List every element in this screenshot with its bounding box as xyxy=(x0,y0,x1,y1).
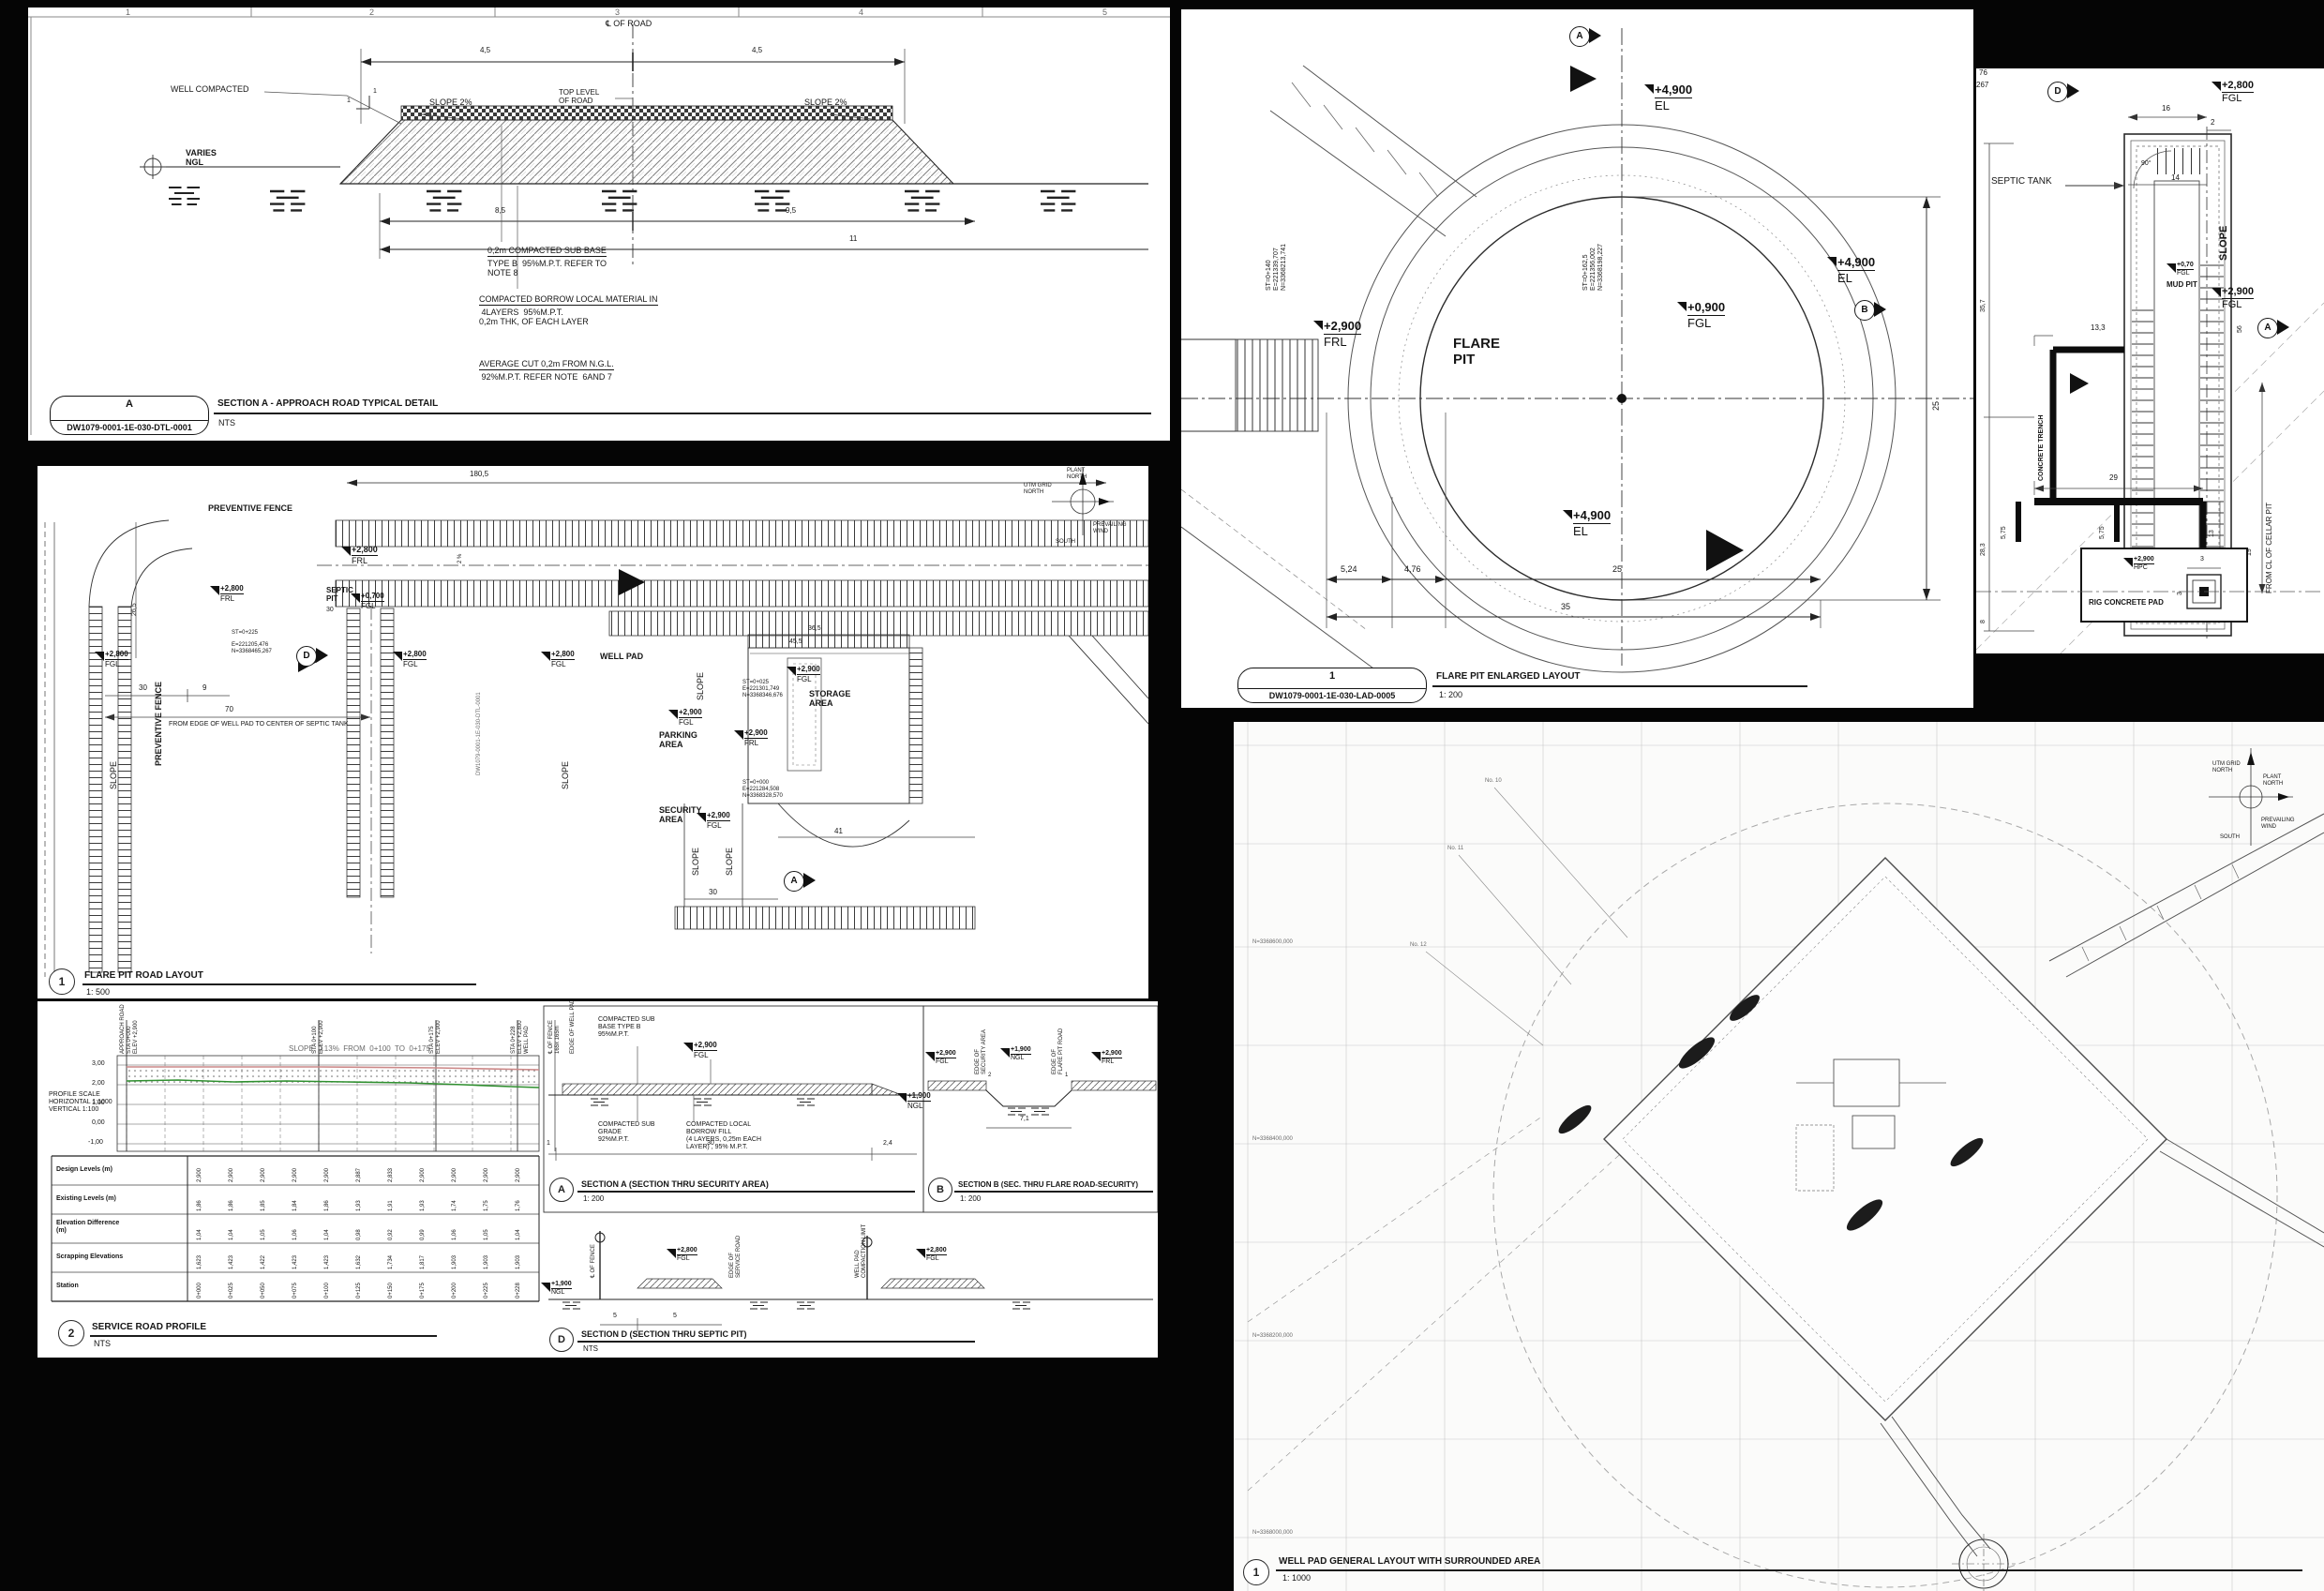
slope-2pct-right: SLOPE 2% xyxy=(804,98,847,107)
station-7: 0+175 xyxy=(420,1283,427,1298)
station-coords-center: ST=0+162,5 E=221356,002 N=3368198,227 xyxy=(1582,244,1605,291)
section-marker-d4: D xyxy=(296,646,317,667)
elev-datum: FGL xyxy=(2222,299,2254,310)
secB-edge-security: EDGE OF SECURITY AREA xyxy=(975,1029,988,1074)
coords-a: E=221205,476 N=3368465,267 xyxy=(232,642,272,655)
slope-ratio-1a: 1 xyxy=(347,98,351,105)
elev-flag-frl-top: +2,800 FRL xyxy=(352,545,378,565)
grid-n-1: N=3368600,000 xyxy=(1252,939,1293,946)
elev-datum: FRL xyxy=(744,739,768,747)
dim-35: 35 xyxy=(1561,602,1570,611)
elev-value: +2,900 xyxy=(694,1041,717,1051)
elev-value: +0,900 xyxy=(1687,300,1725,316)
p5-ref2-label: 2 xyxy=(68,1327,75,1340)
scrap-7: 1,817 xyxy=(420,1255,427,1269)
secA-note-fill: COMPACTED LOCAL BORROW FILL (4 LAYERS, 0… xyxy=(686,1121,761,1151)
panel-septic-mud-pit-detail: 76 267 D +2,800 FGL 16 2 SEPTIC TANK 14 … xyxy=(1976,68,2324,653)
p6-title: WELL PAD GENERAL LAYOUT WITH SURROUNDED … xyxy=(1279,1556,1540,1568)
elev-flag-top: +4,900 EL xyxy=(1655,83,1692,113)
elev-value: +2,800 xyxy=(105,650,128,660)
secB-scale: 1: 200 xyxy=(960,1194,981,1203)
elev-datum: NGL xyxy=(1011,1055,1031,1061)
well-compacted-label: WELL COMPACTED xyxy=(171,84,249,94)
elev-datum: FGL xyxy=(679,718,702,727)
secB-slope-2: 2 xyxy=(988,1073,991,1079)
dim-4-5-left: 4,5 xyxy=(480,46,490,54)
design-10: 2,900 xyxy=(516,1168,522,1182)
design-2: 2,900 xyxy=(261,1168,267,1182)
secD-comp-limit: WELL PAD COMPACTION LIMIT xyxy=(855,1224,868,1278)
secD-cl-fence: ℄ OF FENCE xyxy=(591,1244,597,1278)
elev-flag-storage: +2,900 FGL xyxy=(797,665,820,683)
frag-267: 267 xyxy=(1976,81,1988,89)
p2-ref-number: DW1079-0001-1E-030-LAD-0005 xyxy=(1238,689,1426,702)
elev-datum: FGL xyxy=(707,821,730,830)
dim-25: 25 xyxy=(1612,564,1622,574)
panel-profile-and-sections: PROFILE SCALE HORIZONTAL 1:1000 VERTICAL… xyxy=(37,1001,1158,1358)
dim-30-septic: 30 xyxy=(326,607,334,614)
elev-flag-parking: +2,900 FGL xyxy=(679,708,702,727)
scrap-3: 1,423 xyxy=(292,1255,299,1269)
p2-title: FLARE PIT ENLARGED LAYOUT xyxy=(1436,671,1581,683)
ref-no-11: No. 11 xyxy=(1447,846,1463,852)
elev-flag-right: +4,900 EL xyxy=(1837,255,1875,285)
station-2: 0+050 xyxy=(261,1283,267,1298)
elev-value: +2,800 xyxy=(352,545,378,556)
elev-datum: FGL xyxy=(105,660,128,668)
scrap-2: 1,422 xyxy=(261,1255,267,1269)
section-marker-a-label: A xyxy=(1576,31,1582,41)
design-5: 2,887 xyxy=(356,1168,363,1182)
dim-9: 9 xyxy=(202,683,206,692)
design-1: 2,900 xyxy=(229,1168,235,1182)
elev-flag-mud: +0,70 FGL xyxy=(2177,262,2194,277)
elev-value: +2,900 xyxy=(744,728,768,739)
secB-id: B xyxy=(928,1178,952,1202)
secB-frl-flag: +2,900 FRL xyxy=(1102,1050,1122,1065)
secA-dim-30: 30 xyxy=(707,1140,714,1148)
dim-8-5: 8,5 xyxy=(495,206,505,215)
dim-2: 2 xyxy=(2211,118,2214,127)
p5-scale2: NTS xyxy=(94,1339,111,1348)
p4-ref-id-label: 1 xyxy=(59,975,66,988)
elev-value: +2,800 xyxy=(677,1247,697,1255)
sta-label-0: APPROACH ROAD STA 0+000 ELEV +2,900 xyxy=(120,1004,140,1054)
design-4: 2,900 xyxy=(324,1168,331,1182)
p1-ref-letter: A xyxy=(51,397,208,421)
p6-scale: 1: 1000 xyxy=(1282,1573,1311,1583)
secB-rule xyxy=(954,1191,1153,1193)
dim-4-76: 4,76 xyxy=(1404,564,1421,574)
section-marker-a: A xyxy=(1569,26,1590,47)
grid-n-3: N=3368200,000 xyxy=(1252,1333,1293,1340)
diff-4: 1,04 xyxy=(324,1229,331,1240)
scrap-0: 1,623 xyxy=(197,1255,203,1269)
dim-13: 13 xyxy=(2209,530,2216,537)
p4-scale: 1: 500 xyxy=(86,987,110,997)
elev-datum: EL xyxy=(1655,98,1692,113)
secA-id: A xyxy=(549,1178,574,1202)
secD-fgl-flag-1: +2,800 FGL xyxy=(677,1247,697,1262)
sheet-col-1: 1 xyxy=(126,8,130,17)
diff-1: 1,04 xyxy=(229,1229,235,1240)
elev-datum: NGL xyxy=(907,1102,931,1110)
sheet-col-5: 5 xyxy=(1102,8,1107,17)
station-4: 0+100 xyxy=(324,1283,331,1298)
secD-rule xyxy=(577,1341,975,1343)
station-coords-left: ST=0+140 E=221339,707 N=3368213,741 xyxy=(1266,244,1288,291)
elev-datum: FGL xyxy=(1687,316,1725,330)
rig-concrete-pad-label: RIG CONCRETE PAD xyxy=(2089,598,2164,607)
diff-2: 1,05 xyxy=(261,1229,267,1240)
elev-flag-fgl-1: +2,800 FGL xyxy=(105,650,128,668)
panel-flare-pit-road-layout: 180,5 PREVENTIVE FENCE PREVENTIVE FENCE … xyxy=(37,466,1148,998)
design-3: 2,900 xyxy=(292,1168,299,1182)
slope-2-pct: 2 % xyxy=(457,554,464,563)
dim-30a: 30 xyxy=(139,683,147,692)
scrap-5: 1,632 xyxy=(356,1255,363,1269)
design-7: 2,900 xyxy=(420,1168,427,1182)
station-3: 0+075 xyxy=(292,1283,299,1298)
diff-5: 0,98 xyxy=(356,1229,363,1240)
p1-title: SECTION A - APPROACH ROAD TYPICAL DETAIL xyxy=(217,398,438,410)
elev-datum: FGL xyxy=(797,675,820,683)
elev-datum: FRL xyxy=(1102,1058,1122,1065)
dim-14: 14 xyxy=(2171,173,2180,182)
secD-ngl-flag: +1,900 NGL xyxy=(551,1281,572,1296)
p1-ref-capsule: A DW1079-0001-1E-030-DTL-0001 xyxy=(50,396,209,435)
existing-8: 1,74 xyxy=(452,1200,458,1211)
p2-scale: 1: 200 xyxy=(1439,690,1462,699)
elev-value: +2,900 xyxy=(1324,319,1361,335)
dim-36-5: 36,5 xyxy=(808,625,821,633)
note-subbase-body: TYPE B 95%M.P.T. REFER TO NOTE 8 xyxy=(487,259,607,278)
slope-sec-2: SLOPE xyxy=(725,848,734,876)
scrap-4: 1,423 xyxy=(324,1255,331,1269)
elev-datum: FGL xyxy=(2177,270,2194,277)
p1-ref-number: DW1079-0001-1E-030-DTL-0001 xyxy=(51,421,208,434)
existing-6: 1,91 xyxy=(388,1200,395,1211)
elev-datum: HPC xyxy=(2134,564,2154,571)
elev-value: +2,800 xyxy=(2222,80,2254,93)
station-025: ST=0+025 E=221301,749 N=3368346,676 xyxy=(742,680,783,699)
prevailing-wind-label-6: PREVAILING WIND xyxy=(2261,818,2295,831)
elev-value: +0,70 xyxy=(2177,262,2194,270)
dim-8: 8 xyxy=(1980,620,1987,623)
dim-45-5: 45,5 xyxy=(789,638,802,646)
dim-56: 56 xyxy=(2237,325,2244,333)
elev-datum: FGL xyxy=(551,660,575,668)
existing-3: 1,84 xyxy=(292,1200,299,1211)
elev-datum: FRL xyxy=(352,556,378,565)
scrap-9: 1,903 xyxy=(484,1255,490,1269)
diff-10: 1,04 xyxy=(516,1229,522,1240)
sta-label-3: STA 0+228 ELEV +2,800 WELL PAD xyxy=(511,1020,531,1054)
secD-dim-5b: 5 xyxy=(673,1313,677,1320)
secA-dim-24: 2,4 xyxy=(883,1140,892,1148)
secD-id: D xyxy=(549,1328,574,1352)
section-marker-b: B xyxy=(1854,300,1875,321)
elev-flag-28: +2,800 FGL xyxy=(2222,80,2254,104)
secB-ngl-flag: +1,900 NGL xyxy=(1011,1046,1031,1061)
top-level-of-road-label: TOP LEVEL OF ROAD xyxy=(559,88,599,105)
plant-north-label: PLANT NORTH xyxy=(1067,468,1087,481)
parking-area-label: PARKING AREA xyxy=(659,730,697,750)
centerline-of-road-label: ℄ OF ROAD xyxy=(606,19,652,28)
existing-9: 1,75 xyxy=(484,1200,490,1211)
elev-datum: FRL xyxy=(220,594,244,603)
ref-no-10: No. 10 xyxy=(1485,778,1502,785)
design-8: 2,900 xyxy=(452,1168,458,1182)
south-label: SOUTH xyxy=(1056,539,1075,546)
dim-19: 19 xyxy=(2246,548,2254,556)
p2-ref-id: 1 xyxy=(1238,668,1426,689)
existing-4: 1,86 xyxy=(324,1200,331,1211)
elev-datum: FGL xyxy=(677,1255,697,1262)
grid-n-4: N=3368000,000 xyxy=(1252,1530,1293,1537)
scrap-10: 1,903 xyxy=(516,1255,522,1269)
dim-25-vertical: 25 xyxy=(1931,401,1941,411)
prevailing-wind-label: PREVAILING WIND xyxy=(1093,522,1127,535)
dim-3a: 3 xyxy=(2200,556,2204,563)
ytick-m1: -1,00 xyxy=(88,1139,103,1147)
design-0: 2,900 xyxy=(197,1168,203,1182)
secA-rule xyxy=(577,1191,915,1193)
p6-linework xyxy=(1234,722,2324,1591)
elev-value: +2,800 xyxy=(926,1247,947,1255)
dim-35-7: 35,7 xyxy=(1980,299,1987,312)
secB-edge-flare: EDGE OF FLARE PIT ROAD xyxy=(1052,1028,1065,1074)
section-marker-a4-label: A xyxy=(790,876,797,886)
existing-10: 1,76 xyxy=(516,1200,522,1211)
row-design: Design Levels (m) xyxy=(56,1166,112,1174)
row-station: Station xyxy=(56,1283,79,1290)
secD-title: SECTION D (SECTION THRU SEPTIC PIT) xyxy=(581,1329,747,1339)
p4-title: FLARE PIT ROAD LAYOUT xyxy=(84,970,203,982)
elev-value: +2,800 xyxy=(220,584,244,594)
p6-ref-id-label: 1 xyxy=(1253,1566,1260,1579)
dim-5-75-a: 5,75 xyxy=(2001,526,2008,539)
slope-ratio-1b: 1 xyxy=(373,88,377,96)
elev-datum: NGL xyxy=(551,1289,572,1296)
elev-flag-frl-left: +2,800 FRL xyxy=(220,584,244,603)
elev-value: +4,900 xyxy=(1655,83,1692,98)
existing-0: 1,86 xyxy=(197,1200,203,1211)
row-scrap: Scrapping Elevations xyxy=(56,1253,123,1261)
elev-flag-center: +0,900 FGL xyxy=(1687,300,1725,330)
utm-north-label-6: UTM GRID NORTH xyxy=(2212,761,2241,774)
elev-value: +2,900 xyxy=(679,708,702,718)
diff-7: 0,99 xyxy=(420,1229,427,1240)
dim-3b: 3 xyxy=(2177,592,2184,595)
dim-13-3: 13,3 xyxy=(2091,323,2106,332)
elev-value: +2,800 xyxy=(551,650,575,660)
section-marker-d4-label: D xyxy=(303,651,309,661)
elev-flag-frl-storage: +2,900 FRL xyxy=(744,728,768,747)
dim-16: 16 xyxy=(2162,104,2170,113)
sheet-col-3: 3 xyxy=(615,8,620,17)
note-cut-title: AVERAGE CUT 0,2m FROM N.G.L. xyxy=(479,359,614,370)
note-subbase-title: 0,2m COMPACTED SUB BASE xyxy=(487,246,607,257)
note-cut-body: 92%M.P.T. REFER NOTE 6AND 7 xyxy=(479,372,612,382)
elev-flag-hpc: +2,900 HPC xyxy=(2134,556,2154,571)
dwg-number-vertical: DW1079-0001-1E-030-DTL-0001 xyxy=(476,692,483,775)
elev-datum: FRL xyxy=(1324,335,1361,349)
elev-value: +2,900 xyxy=(2134,556,2154,564)
secB-title: SECTION B (SEC. THRU FLARE ROAD-SECURITY… xyxy=(958,1180,1138,1189)
dim-29: 29 xyxy=(2109,473,2118,482)
station-225: ST=0+225 xyxy=(232,630,258,637)
secB-slope-1: 1 xyxy=(1065,1073,1068,1079)
ref-no-12: No. 12 xyxy=(1410,942,1427,949)
elev-value: +2,900 xyxy=(707,811,730,821)
grid-n-2: N=3368400,000 xyxy=(1252,1136,1293,1143)
cl-fence-label: ℄ OF FENCE 165x 165m xyxy=(548,1020,562,1054)
ytick-3: 3,00 xyxy=(92,1060,105,1068)
security-area-label: SECURITY AREA xyxy=(659,805,702,825)
ytick-0: 0,00 xyxy=(92,1119,105,1127)
elev-flag-bottom: +4,900 EL xyxy=(1573,508,1611,538)
elev-value: +1,900 xyxy=(551,1281,572,1289)
station-0: 0+000 xyxy=(197,1283,203,1298)
elev-value: +2,900 xyxy=(1102,1050,1122,1058)
flare-pit-label: FLARE PIT xyxy=(1453,336,1500,368)
elev-value: +1,900 xyxy=(907,1091,931,1102)
sheet-col-2: 2 xyxy=(369,8,374,17)
p5-title2-rule xyxy=(90,1335,437,1337)
station-5: 0+125 xyxy=(356,1283,363,1298)
secA-id-label: A xyxy=(558,1184,565,1195)
angle-90: 90° xyxy=(2141,160,2152,168)
dim-11: 11 xyxy=(849,234,857,243)
panel-well-pad-general-layout: No. 10 No. 11 No. 12 N=3368600,000 N=336… xyxy=(1234,722,2324,1591)
ytick-2: 2,00 xyxy=(92,1080,105,1088)
dim-28-3: 28,3 xyxy=(1980,543,1987,556)
elev-datum: FGL xyxy=(926,1255,947,1262)
profile-slope-note: SLOPE 0.13% FROM 0+100 TO 0+175 xyxy=(289,1044,430,1053)
secA-note-grade: COMPACTED SUB GRADE 92%M.P.T. xyxy=(598,1121,655,1144)
concrete-trench-label: CONCRETE TRENCH xyxy=(2038,415,2046,481)
dim-30c: 30 xyxy=(709,888,717,896)
panel-approach-road-detail: 1 2 3 4 5 ℄ OF ROAD 4,5 4,5 WELL COMPACT… xyxy=(28,8,1170,441)
station-6: 0+150 xyxy=(388,1283,395,1298)
diff-0: 1,04 xyxy=(197,1229,203,1240)
existing-1: 1,86 xyxy=(229,1200,235,1211)
plant-north-label-6: PLANT NORTH xyxy=(2263,774,2283,788)
dim-26-5: 26,5 xyxy=(131,603,139,616)
section-marker-d: D xyxy=(2047,82,2068,102)
diff-6: 0,92 xyxy=(388,1229,395,1240)
existing-7: 1,93 xyxy=(420,1200,427,1211)
elev-value: +0,700 xyxy=(361,592,384,602)
section-marker-a4: A xyxy=(784,871,804,892)
elev-flag-frl: +2,900 FRL xyxy=(1324,319,1361,349)
septic-pit-label: SEPTIC PIT xyxy=(326,586,353,603)
existing-5: 1,93 xyxy=(356,1200,363,1211)
station-1: 0+025 xyxy=(229,1283,235,1298)
sta-label-2: STA 0+175 ELEV +2,900 xyxy=(429,1020,442,1054)
existing-2: 1,85 xyxy=(261,1200,267,1211)
p2-ref-capsule: 1 DW1079-0001-1E-030-LAD-0005 xyxy=(1237,668,1427,703)
elev-value: +2,900 xyxy=(936,1050,956,1058)
elev-value: +2,900 xyxy=(2222,286,2254,299)
secA-scale: 1: 200 xyxy=(583,1194,604,1203)
elev-value: +4,900 xyxy=(1837,255,1875,271)
note-borrow-title: COMPACTED BORROW LOCAL MATERIAL IN xyxy=(479,294,658,306)
mud-pit-label: MUD PIT xyxy=(2167,280,2197,289)
p4-linework xyxy=(37,466,1148,998)
dim-5-75-b: 5,75 xyxy=(2099,526,2107,539)
secD-fgl-flag-2: +2,800 FGL xyxy=(926,1247,947,1262)
edge-well-pad-label: EDGE OF WELL PAD xyxy=(570,999,577,1054)
dim-9-5: 9,5 xyxy=(786,206,796,215)
elev-datum: FGL xyxy=(694,1051,717,1059)
p4-title-rule xyxy=(82,983,476,985)
dim-180-5: 180,5 xyxy=(470,470,488,478)
sheet-col-4: 4 xyxy=(859,8,863,17)
p4-ref-id: 1 xyxy=(49,968,75,995)
from-cl-cellar-label: FROM CL OF CELLAR PIT xyxy=(2265,503,2273,593)
elev-datum: EL xyxy=(1837,271,1875,285)
dim-70: 70 xyxy=(225,705,233,713)
station-10: 0+228 xyxy=(516,1283,522,1298)
elev-datum: EL xyxy=(1573,524,1611,538)
panel-flare-pit-enlarged: A +4,900 EL ST=0+140 E=221339,707 N=3368… xyxy=(1181,9,1973,708)
slope-2pct-left: SLOPE 2% xyxy=(429,98,472,107)
secA-dim-1: 1 xyxy=(547,1140,550,1148)
varies-ngl-label: VARIES NGL xyxy=(186,148,217,168)
elev-datum: FGL xyxy=(403,660,427,668)
secD-dim-5a: 5 xyxy=(613,1313,617,1320)
scrap-6: 1,734 xyxy=(388,1255,395,1269)
p2-title-rule xyxy=(1432,685,1807,687)
slope-label: SLOPE xyxy=(2218,226,2230,261)
ytick-1: 1,00 xyxy=(92,1100,105,1107)
elev-datum: FGL xyxy=(361,602,384,610)
utm-north-label: UTM GRID NORTH xyxy=(1024,483,1052,496)
elev-value: +4,900 xyxy=(1573,508,1611,524)
scrap-1: 1,423 xyxy=(229,1255,235,1269)
elev-datum: FGL xyxy=(2222,93,2254,104)
secB-id-label: B xyxy=(937,1184,944,1195)
design-9: 2,900 xyxy=(484,1168,490,1182)
secA-note-base: COMPACTED SUB BASE TYPE B 95%M.P.T. xyxy=(598,1016,655,1039)
design-6: 2,833 xyxy=(388,1168,395,1182)
elev-flag-0700: +0,700 FGL xyxy=(361,592,384,610)
p2-linework xyxy=(1181,9,1973,708)
p5-title2: SERVICE ROAD PROFILE xyxy=(92,1322,206,1333)
elev-flag-security: +2,900 FGL xyxy=(707,811,730,830)
secB-dim-71: 7,1 xyxy=(1020,1116,1029,1123)
row-existing: Existing Levels (m) xyxy=(56,1195,116,1203)
diff-9: 1,05 xyxy=(484,1229,490,1240)
p5-ref2-id: 2 xyxy=(58,1320,84,1346)
row-diff: Elevation Difference (m) xyxy=(56,1220,119,1235)
note-borrow-body: 4LAYERS 95%M.P.T. 0,2m THK, OF EACH LAYE… xyxy=(479,308,589,327)
slope-storage: SLOPE xyxy=(696,672,705,700)
elev-datum: FGL xyxy=(936,1058,956,1065)
dim-41: 41 xyxy=(834,827,843,835)
slope-mid: SLOPE xyxy=(561,761,570,789)
secA-title: SECTION A (SECTION THRU SECURITY AREA) xyxy=(581,1179,769,1189)
station-000: ST=0+000 E=221284,508 N=3368328,570 xyxy=(742,780,783,800)
elev-flag-fgl-3: +2,800 FGL xyxy=(551,650,575,668)
septic-tank-label: SEPTIC TANK xyxy=(1991,176,2052,188)
section-marker-d-label: D xyxy=(2054,86,2061,97)
elev-flag-fgl-2: +2,800 FGL xyxy=(403,650,427,668)
storage-area-label: STORAGE AREA xyxy=(809,689,850,709)
south-label-6: SOUTH xyxy=(2220,834,2240,841)
